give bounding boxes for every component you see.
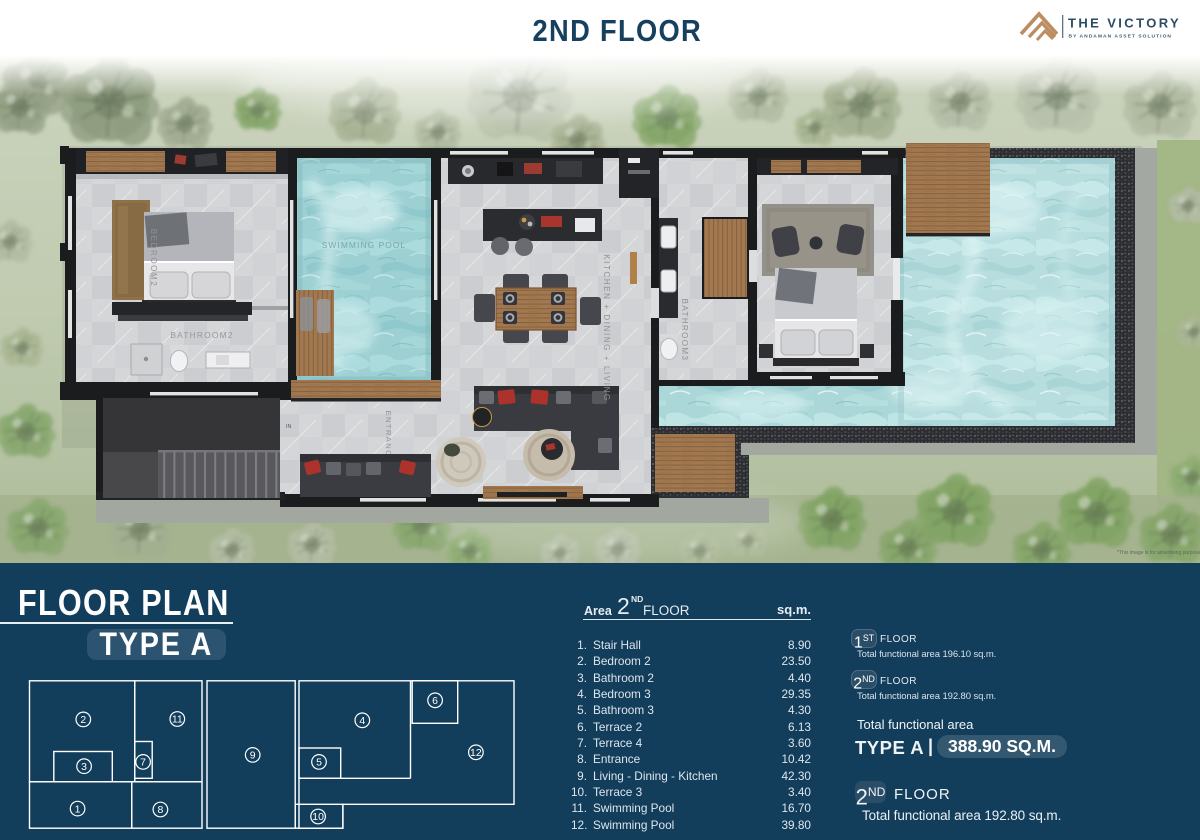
svg-text:BY ANDAMAN ASSET SOLUTION: BY ANDAMAN ASSET SOLUTION xyxy=(1069,34,1173,40)
svg-text:6: 6 xyxy=(432,695,438,707)
svg-text:10: 10 xyxy=(312,811,324,823)
svg-text:1: 1 xyxy=(75,803,81,815)
svg-text:12: 12 xyxy=(470,747,482,759)
svg-text:8: 8 xyxy=(157,804,163,816)
svg-text:2: 2 xyxy=(80,714,86,726)
svg-text:KITCHEN + DINING + LIVING: KITCHEN + DINING + LIVING xyxy=(602,254,611,402)
svg-text:11: 11 xyxy=(172,714,183,726)
svg-text:3: 3 xyxy=(81,761,87,773)
svg-text:SWIMMING POOL: SWIMMING POOL xyxy=(322,240,407,250)
svg-text:THE VICTORY: THE VICTORY xyxy=(1068,16,1181,31)
svg-text:BEDROOM2: BEDROOM2 xyxy=(149,229,158,288)
svg-text:BATHROOM2: BATHROOM2 xyxy=(170,330,233,340)
svg-text:4: 4 xyxy=(359,715,365,727)
svg-text:IN: IN xyxy=(286,424,291,430)
svg-text:5: 5 xyxy=(316,757,322,769)
svg-text:BATHROOM3: BATHROOM3 xyxy=(680,299,689,362)
svg-text:*This image is for advertising: *This image is for advertising purpose o… xyxy=(1117,550,1200,556)
svg-text:7: 7 xyxy=(140,757,146,769)
svg-text:9: 9 xyxy=(250,750,256,762)
